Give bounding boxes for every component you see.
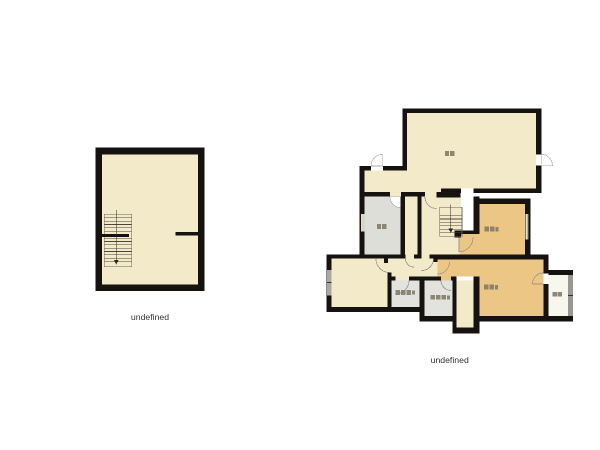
- svg-text:undefined: undefined: [431, 355, 469, 365]
- svg-text:undefined: undefined: [131, 312, 169, 322]
